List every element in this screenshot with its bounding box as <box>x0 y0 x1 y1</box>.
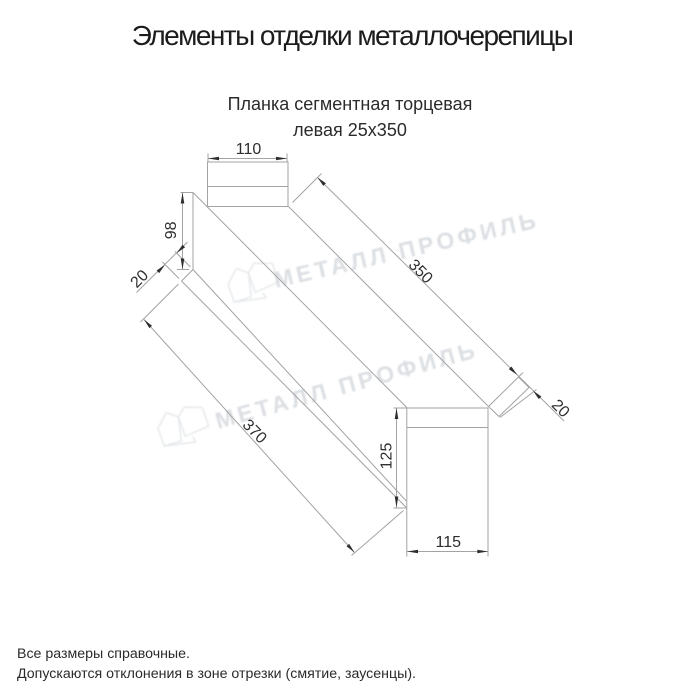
svg-text:98: 98 <box>163 221 180 239</box>
svg-text:115: 115 <box>436 534 462 551</box>
svg-text:20: 20 <box>128 267 153 292</box>
svg-text:110: 110 <box>236 141 262 158</box>
svg-text:МЕТАЛЛ ПРОФИЛЬ: МЕТАЛЛ ПРОФИЛЬ <box>271 206 541 292</box>
svg-text:20: 20 <box>548 397 573 422</box>
svg-text:125: 125 <box>379 443 396 470</box>
